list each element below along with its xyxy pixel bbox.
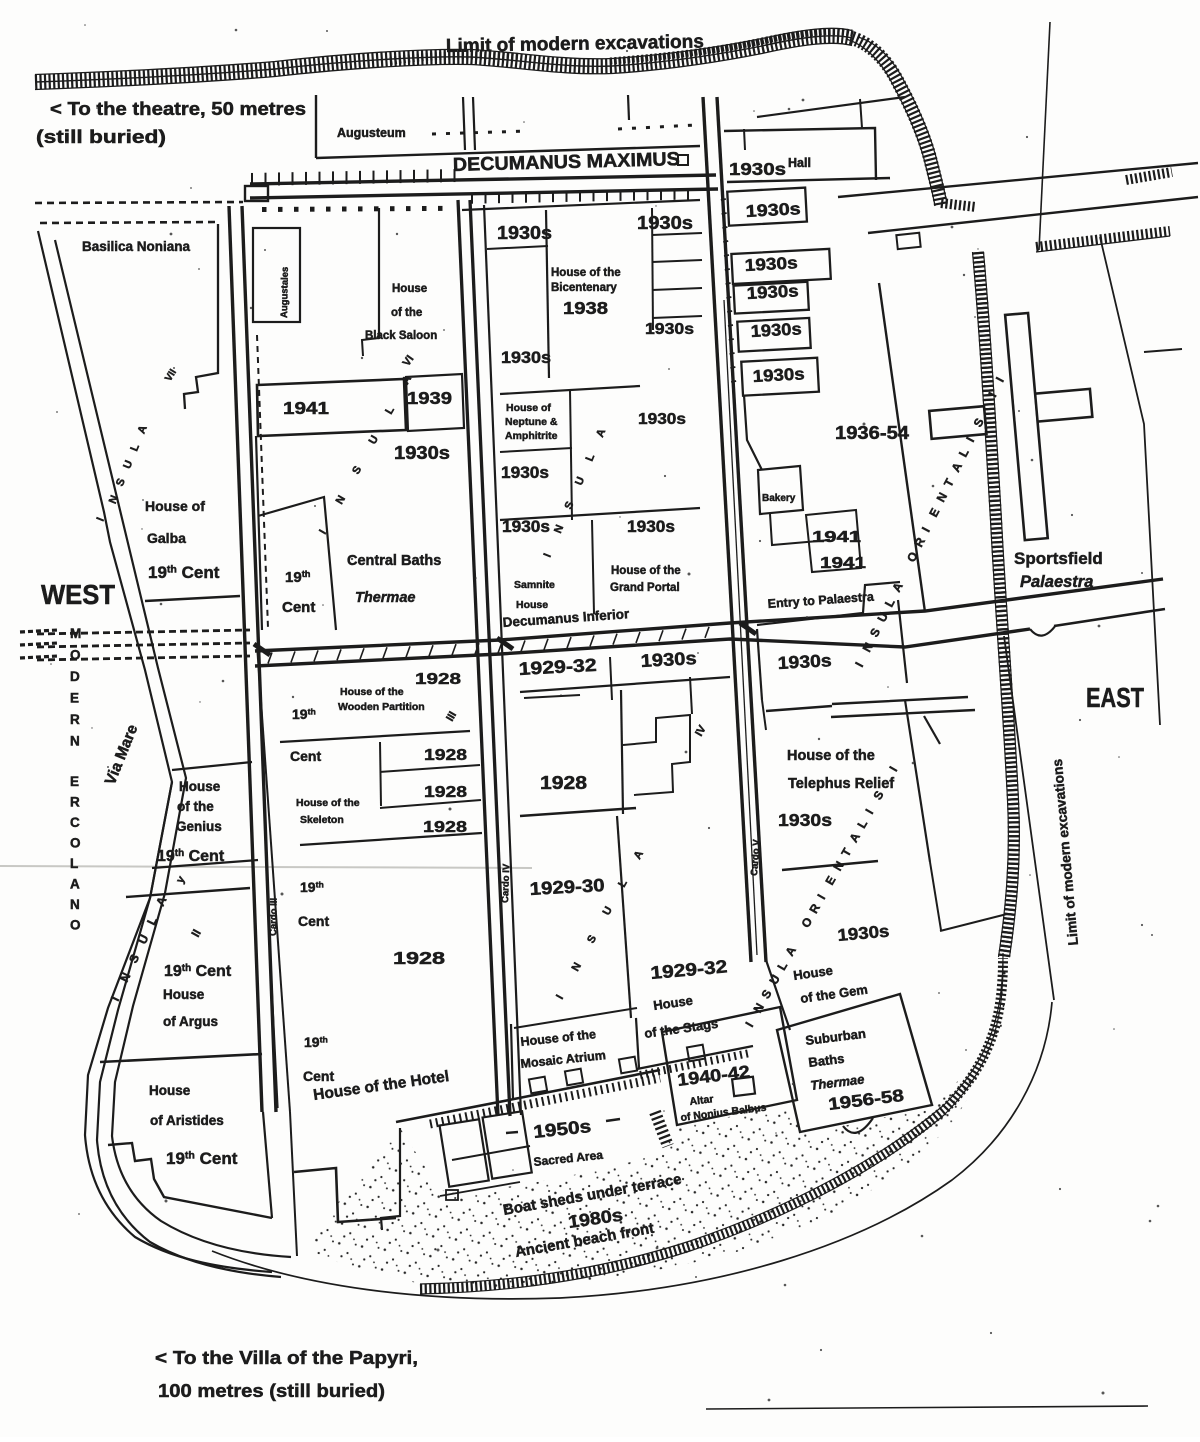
svg-text:N: N [70, 897, 80, 912]
svg-text:< To the Villa of the Papyri,: < To the Villa of the Papyri, [155, 1347, 418, 1368]
svg-text:Grand Portal: Grand Portal [610, 582, 680, 594]
svg-text:O: O [70, 836, 81, 851]
svg-text:Genius: Genius [176, 819, 222, 834]
svg-text:Skeleton: Skeleton [300, 814, 344, 826]
svg-text:19th Cent: 19th Cent [148, 563, 220, 582]
svg-text:R: R [70, 795, 80, 810]
svg-text:1941: 1941 [812, 529, 861, 546]
svg-text:< To the theatre, 50 metres: < To the theatre, 50 metres [50, 98, 306, 119]
svg-text:1928: 1928 [393, 948, 445, 968]
svg-text:C: C [70, 815, 80, 830]
svg-text:1930s: 1930s [501, 349, 551, 367]
svg-text:1941: 1941 [283, 398, 329, 418]
svg-text:1930s: 1930s [752, 364, 805, 386]
svg-text:Telephus Relief: Telephus Relief [788, 776, 894, 792]
svg-text:Sportsfield: Sportsfield [1014, 549, 1103, 568]
svg-text:1928: 1928 [540, 773, 587, 793]
svg-text:1928: 1928 [423, 819, 467, 836]
svg-text:19th Cent: 19th Cent [164, 963, 232, 980]
svg-text:of the: of the [391, 307, 422, 319]
svg-text:1930s: 1930s [638, 411, 686, 428]
svg-text:Cardo IV: Cardo IV [500, 863, 512, 903]
svg-text:1930s: 1930s [497, 223, 552, 243]
svg-text:D: D [70, 669, 80, 684]
svg-text:Wooden Partition: Wooden Partition [338, 701, 425, 713]
svg-text:Galba: Galba [147, 530, 186, 546]
svg-text:House of the: House of the [787, 748, 875, 764]
svg-text:O: O [70, 918, 81, 933]
svg-text:Palaestra: Palaestra [1020, 573, 1093, 591]
svg-text:WEST: WEST [41, 579, 115, 610]
svg-text:(still buried): (still buried) [36, 126, 166, 147]
svg-text:of the: of the [177, 799, 214, 814]
svg-text:Bicentenary: Bicentenary [551, 282, 617, 294]
svg-text:House of: House of [145, 498, 205, 514]
svg-text:Neptune &: Neptune & [505, 416, 558, 428]
svg-text:Augustales: Augustales [279, 267, 291, 318]
svg-text:House of: House of [506, 402, 551, 414]
svg-text:House: House [163, 987, 205, 1002]
svg-text:1930s: 1930s [744, 253, 798, 275]
svg-text:Cent: Cent [303, 1068, 334, 1084]
svg-text:1930s: 1930s [645, 321, 694, 338]
svg-text:E: E [70, 774, 79, 789]
svg-text:1930s: 1930s [394, 443, 450, 463]
svg-text:Cent: Cent [298, 913, 329, 929]
svg-text:1938: 1938 [563, 298, 608, 318]
svg-text:1930s: 1930s [746, 281, 799, 303]
svg-text:A: A [70, 877, 80, 892]
svg-text:Thermae: Thermae [355, 590, 415, 606]
svg-text:1930s: 1930s [745, 199, 801, 221]
svg-text:Cent: Cent [290, 748, 321, 764]
svg-text:1928: 1928 [415, 671, 461, 688]
svg-text:Augusteum: Augusteum [337, 126, 406, 140]
svg-text:1930s: 1930s [627, 518, 675, 536]
svg-text:E: E [70, 691, 79, 706]
svg-text:Central Baths: Central Baths [347, 553, 441, 569]
svg-text:of Aristides: of Aristides [150, 1113, 224, 1128]
svg-text:Basilica Noniana: Basilica Noniana [82, 239, 191, 254]
svg-text:1930s: 1930s [778, 810, 832, 830]
svg-text:1930s: 1930s [750, 319, 802, 341]
svg-text:1930s: 1930s [640, 648, 697, 671]
svg-text:House of the: House of the [340, 686, 404, 698]
svg-text:1939: 1939 [407, 388, 452, 408]
svg-text:Amphitrite: Amphitrite [505, 430, 558, 442]
svg-text:House of the: House of the [611, 565, 681, 577]
svg-text:Samnite: Samnite [514, 579, 555, 591]
svg-text:House: House [516, 599, 548, 611]
svg-text:1929-32: 1929-32 [518, 655, 597, 679]
svg-text:Bakery: Bakery [762, 493, 796, 504]
svg-text:1930s: 1930s [637, 213, 693, 233]
svg-text:R: R [70, 712, 80, 727]
svg-text:House: House [392, 283, 427, 295]
svg-text:1928: 1928 [424, 747, 467, 764]
svg-text:of Argus: of Argus [163, 1014, 218, 1029]
svg-text:L: L [70, 856, 78, 871]
svg-text:19th Cent: 19th Cent [166, 1149, 238, 1168]
svg-text:1929-30: 1929-30 [529, 875, 605, 899]
svg-text:House of the: House of the [296, 797, 360, 809]
svg-text:N: N [70, 734, 80, 749]
svg-text:1930s: 1930s [501, 464, 549, 482]
svg-text:1930s: 1930s [777, 650, 832, 673]
svg-text:100 metres (still buried): 100 metres (still buried) [158, 1380, 385, 1401]
svg-text:1930s: 1930s [729, 159, 786, 179]
svg-text:Cent: Cent [282, 599, 315, 616]
svg-text:Cardo III: Cardo III [268, 898, 280, 936]
svg-text:Hall: Hall [788, 156, 811, 170]
svg-text:House: House [149, 1083, 191, 1098]
svg-text:Black Saloon: Black Saloon [365, 330, 437, 342]
svg-text:1930s: 1930s [502, 518, 550, 536]
svg-text:House: House [179, 779, 221, 794]
svg-text:House of the: House of the [551, 267, 621, 279]
svg-text:1928: 1928 [424, 784, 467, 801]
svg-text:EAST: EAST [1086, 682, 1144, 713]
